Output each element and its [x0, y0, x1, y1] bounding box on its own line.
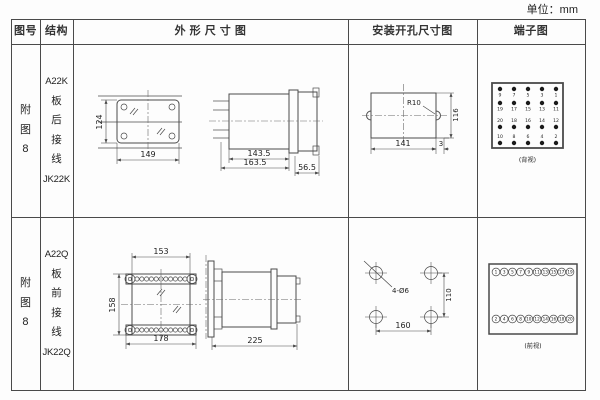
svg-text:1: 1	[555, 93, 558, 99]
svg-text:10: 10	[526, 317, 532, 322]
dim-offset-label: 3	[439, 140, 443, 148]
svg-text:15: 15	[551, 270, 557, 275]
mounting-hole-drawing-a22q: 4-Ø6 110 160	[348, 217, 477, 391]
svg-text:19: 19	[567, 270, 573, 275]
terminal-view-caption: (背视)	[519, 156, 536, 164]
svg-text:5: 5	[527, 93, 530, 99]
row1-fig-cell: 附图8	[11, 44, 40, 217]
terminal-view-caption: (前视)	[524, 342, 541, 350]
svg-text:9: 9	[527, 270, 530, 275]
svg-text:18: 18	[511, 118, 517, 124]
svg-text:12: 12	[534, 317, 540, 322]
svg-text:17: 17	[511, 107, 517, 113]
mounting-hole-drawing-a22k: R10 116 141 3	[348, 44, 477, 217]
dim-top-width-label: 153	[153, 247, 168, 256]
svg-text:16: 16	[525, 118, 531, 124]
row1-fig-no: 附图8	[19, 101, 32, 160]
row1-model: A22K	[45, 76, 67, 87]
svg-text:1: 1	[495, 270, 498, 275]
dim-total-depth-label: 163.5	[244, 158, 267, 167]
side-view: 143.5 163.5 56.5	[209, 88, 323, 176]
row2-structure-cell: A22Q 板前接线 JK22Q	[40, 217, 73, 390]
dim-rear-depth-label: 56.5	[298, 163, 316, 172]
row1-wiring: 板后接线	[51, 92, 63, 170]
datasheet-page: 单位：mm 图号 结构 外 形 尺 寸 图 安装开孔尺寸图 端子图 附图8 A2…	[0, 0, 600, 400]
header-mounting: 安装开孔尺寸图	[348, 19, 477, 44]
svg-text:3: 3	[541, 93, 544, 99]
outline-drawing-a22q: 153 158 178 225	[73, 217, 348, 391]
terminal-screws-top: 135791113151719	[492, 268, 574, 276]
row2-wiring: 板前接线	[51, 265, 63, 343]
dim-radius-label: R10	[407, 99, 421, 107]
dim-height-label: 124	[95, 114, 104, 129]
svg-text:8: 8	[513, 134, 516, 140]
row2-relay-type: JK22Q	[42, 347, 70, 358]
svg-text:14: 14	[539, 118, 545, 124]
row1-structure-cell: A22K 板后接线 JK22K	[40, 44, 73, 217]
side-view: 225	[203, 255, 303, 350]
dim-vertical-spacing-label: 110	[445, 288, 453, 301]
terminal-numbers: 97531 1917151311 2018161412 108642	[497, 93, 559, 141]
header-structure: 结构	[40, 19, 73, 44]
outline-drawing-a22k: 124 149 143.5 163.5 56.5	[73, 44, 348, 217]
svg-text:19: 19	[497, 107, 503, 113]
svg-text:3: 3	[503, 270, 506, 275]
svg-text:14: 14	[543, 317, 549, 322]
front-view: 124 149	[95, 90, 182, 164]
dim-width-label: 149	[140, 150, 155, 159]
svg-text:20: 20	[567, 317, 573, 322]
table-border-right	[585, 19, 586, 391]
mounting-holes	[365, 262, 442, 328]
dim-depth-label: 225	[247, 336, 262, 345]
svg-text:9: 9	[499, 93, 502, 99]
row2-fig-cell: 附图8	[11, 217, 40, 390]
terminal-diagram-jk22k: 97531 1917151311 2018161412 108642 (背视)	[477, 44, 585, 217]
svg-text:5: 5	[511, 270, 514, 275]
svg-text:13: 13	[543, 270, 549, 275]
svg-text:7: 7	[519, 270, 522, 275]
svg-text:7: 7	[513, 93, 516, 99]
svg-text:2: 2	[555, 134, 558, 140]
header-outline: 外 形 尺 寸 图	[73, 19, 348, 44]
svg-text:6: 6	[527, 134, 530, 140]
dim-cut-height-label: 116	[452, 108, 460, 122]
hatch-marks	[130, 108, 165, 135]
svg-text:4: 4	[503, 317, 506, 322]
svg-text:10: 10	[497, 134, 503, 140]
dim-body-depth-label: 143.5	[248, 149, 271, 158]
row2-model: A22Q	[45, 249, 69, 260]
svg-text:13: 13	[539, 107, 545, 113]
dim-bottom-width-label: 178	[153, 334, 168, 343]
row2-fig-no: 附图8	[19, 274, 32, 333]
cutout-view: R10 116 141 3	[362, 84, 460, 154]
svg-text:4: 4	[541, 134, 544, 140]
svg-text:16: 16	[551, 317, 557, 322]
row1-relay-type: JK22K	[43, 174, 70, 185]
dim-height-label: 158	[108, 297, 117, 312]
front-view: 153 158 178	[108, 247, 201, 349]
svg-text:18: 18	[559, 317, 565, 322]
svg-text:15: 15	[525, 107, 531, 113]
svg-text:2: 2	[495, 317, 498, 322]
svg-text:8: 8	[519, 317, 522, 322]
svg-text:20: 20	[497, 118, 503, 124]
terminal-diagram-jk22q: 135791113151719 2468101214161820 (前视)	[477, 217, 585, 391]
svg-text:11: 11	[534, 270, 540, 275]
svg-text:11: 11	[553, 107, 559, 113]
dim-horizontal-spacing-label: 160	[395, 321, 410, 330]
dim-cut-width-label: 141	[395, 139, 410, 148]
svg-text:6: 6	[511, 317, 514, 322]
header-terminal: 端子图	[477, 19, 585, 44]
terminal-screws-bottom: 2468101214161820	[492, 315, 574, 323]
header-fig-no: 图号	[11, 19, 40, 44]
hatch-marks	[157, 289, 181, 313]
svg-text:17: 17	[559, 270, 565, 275]
svg-text:12: 12	[553, 118, 559, 124]
hole-spec-label: 4-Ø6	[392, 287, 409, 295]
unit-label: 单位：mm	[527, 1, 578, 17]
